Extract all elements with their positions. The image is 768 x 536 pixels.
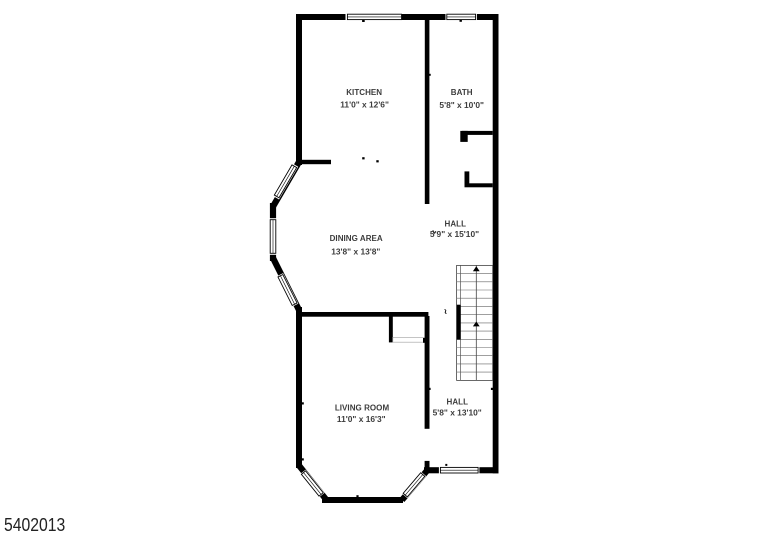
svg-text:LIVING ROOM: LIVING ROOM bbox=[335, 403, 390, 412]
svg-text:HALL: HALL bbox=[445, 220, 467, 229]
svg-text:KITCHEN: KITCHEN bbox=[346, 88, 382, 97]
svg-text:DINING AREA: DINING AREA bbox=[330, 234, 383, 243]
svg-text:11'0" x 12'6": 11'0" x 12'6" bbox=[340, 99, 389, 109]
svg-text:BATH: BATH bbox=[451, 88, 473, 97]
svg-text:HALL: HALL bbox=[447, 398, 469, 407]
svg-text:5'9" x 15'10": 5'9" x 15'10" bbox=[430, 229, 479, 239]
svg-text:5'8" x 13'10": 5'8" x 13'10" bbox=[433, 407, 482, 417]
svg-text:13'8" x 13'8": 13'8" x 13'8" bbox=[331, 246, 380, 256]
svg-text:5'8" x 10'0": 5'8" x 10'0" bbox=[439, 100, 484, 110]
svg-text:11'0" x 16'3": 11'0" x 16'3" bbox=[337, 414, 386, 424]
